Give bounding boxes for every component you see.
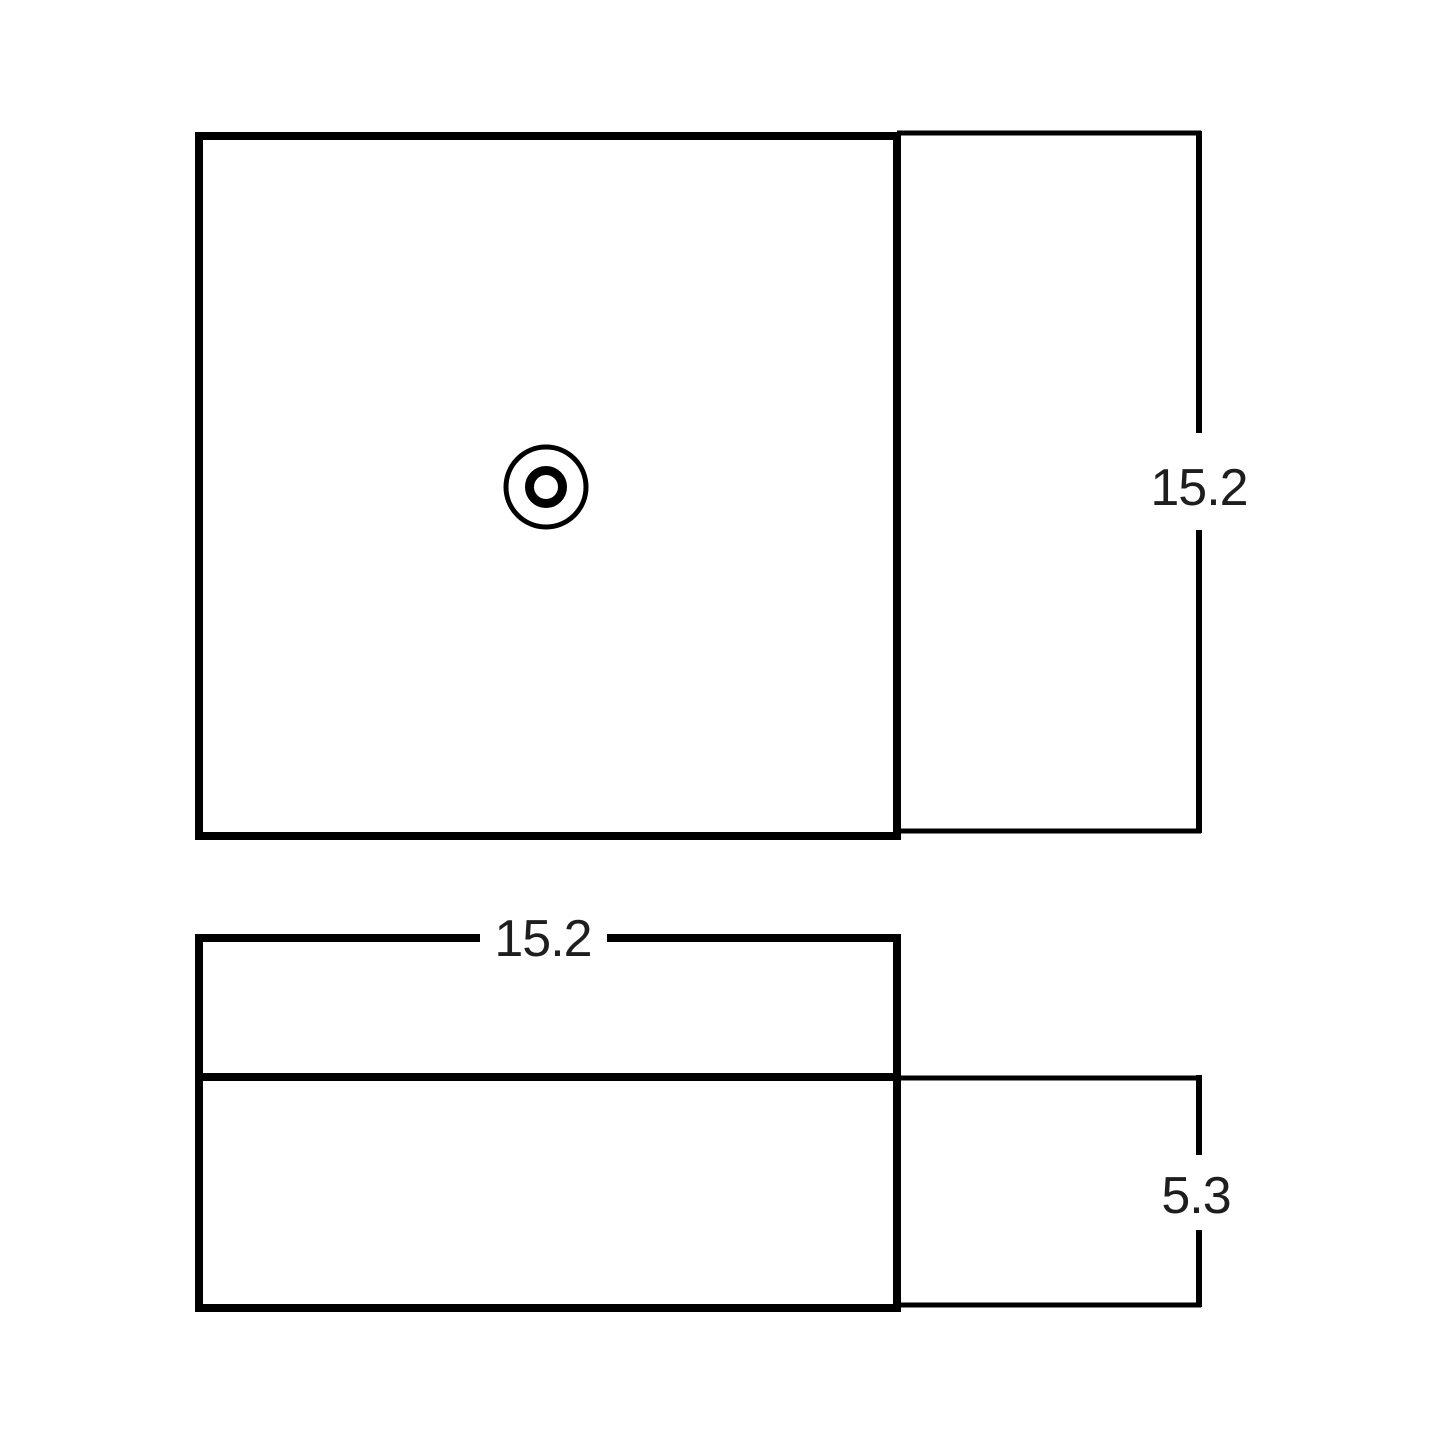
width-dimension-label: 15.2 [494,910,591,968]
drain-icon [506,447,586,527]
drain-outer-circle [506,447,586,527]
drain-inner-circle [530,471,563,504]
sink-dimension-drawing: 15.2 15.2 5.3 [0,0,1445,1445]
top-view: 15.2 [195,131,1248,840]
side-view: 15.2 5.3 [195,910,1231,1312]
depth-dimension-label: 15.2 [1150,459,1247,517]
height-dimension-label: 5.3 [1161,1167,1230,1225]
sink-dimension-diagram: 15.2 15.2 5.3 [0,0,1445,1445]
